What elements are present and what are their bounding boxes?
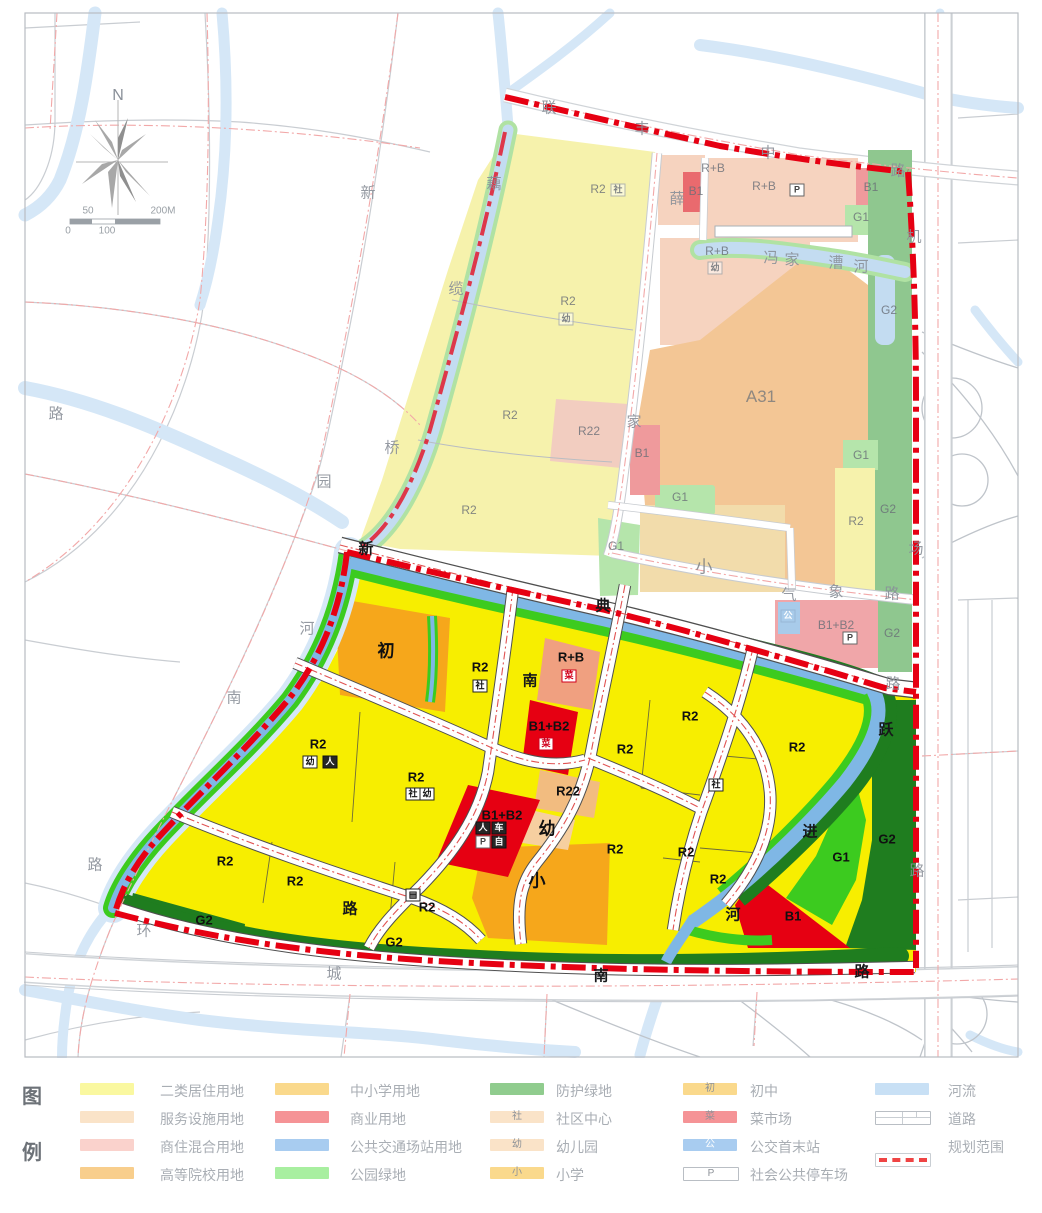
legend-label: 小学 xyxy=(556,1165,584,1185)
legend-title-char-1: 图 xyxy=(22,1080,42,1109)
legend-swatch xyxy=(275,1111,329,1123)
legend-swatch xyxy=(275,1167,329,1179)
legend-swatch: 公 xyxy=(683,1139,737,1151)
legend-label: 公交首末站 xyxy=(750,1137,820,1157)
scale-bar xyxy=(70,219,160,224)
legend-label: 商住混合用地 xyxy=(160,1137,244,1157)
legend-swatch xyxy=(80,1139,134,1151)
legend-title-char-2: 例 xyxy=(22,1136,42,1165)
legend-swatch xyxy=(490,1083,544,1095)
legend-label: 初中 xyxy=(750,1081,778,1101)
legend-label: 菜市场 xyxy=(750,1109,792,1129)
legend-swatch xyxy=(275,1083,329,1095)
legend-swatch xyxy=(275,1139,329,1151)
legend-label: 社区中心 xyxy=(556,1109,612,1129)
legend-items: 二类居住用地服务设施用地商住混合用地高等院校用地中小学用地商业用地公共交通场站用… xyxy=(0,1058,1042,1086)
legend-label: 高等院校用地 xyxy=(160,1165,244,1185)
legend-swatch xyxy=(875,1083,929,1095)
planning-map-page: { "map": { "labels": [ {"t":"N","x":118,… xyxy=(0,0,1042,1213)
legend-swatch xyxy=(875,1153,931,1167)
legend-swatch xyxy=(80,1111,134,1123)
legend-swatch xyxy=(80,1083,134,1095)
legend-swatch: 小 xyxy=(490,1167,544,1179)
legend-swatch: 初 xyxy=(683,1083,737,1095)
legend-label: 中小学用地 xyxy=(350,1081,420,1101)
compass-rose-icon xyxy=(76,100,168,215)
legend-label: 幼儿园 xyxy=(556,1137,598,1157)
legend: 图 例 二类居住用地服务设施用地商住混合用地高等院校用地中小学用地商业用地公共交… xyxy=(0,1058,1042,1213)
legend-label: 规划范围 xyxy=(948,1137,1004,1157)
legend-label: 社会公共停车场 xyxy=(750,1165,848,1185)
legend-label: 服务设施用地 xyxy=(160,1109,244,1129)
legend-swatch xyxy=(80,1167,134,1179)
legend-swatch: 幼 xyxy=(490,1139,544,1151)
legend-label: 公园绿地 xyxy=(350,1165,406,1185)
legend-swatch xyxy=(875,1111,931,1125)
legend-label: 商业用地 xyxy=(350,1109,406,1129)
legend-label: 道路 xyxy=(948,1109,976,1129)
legend-swatch: P xyxy=(683,1167,739,1181)
legend-label: 二类居住用地 xyxy=(160,1081,244,1101)
legend-swatch: 菜 xyxy=(683,1111,737,1123)
legend-label: 公共交通场站用地 xyxy=(350,1137,462,1157)
legend-label: 河流 xyxy=(948,1081,976,1101)
map-canvas xyxy=(0,0,1042,1213)
legend-swatch: 社 xyxy=(490,1111,544,1123)
legend-label: 防护绿地 xyxy=(556,1081,612,1101)
